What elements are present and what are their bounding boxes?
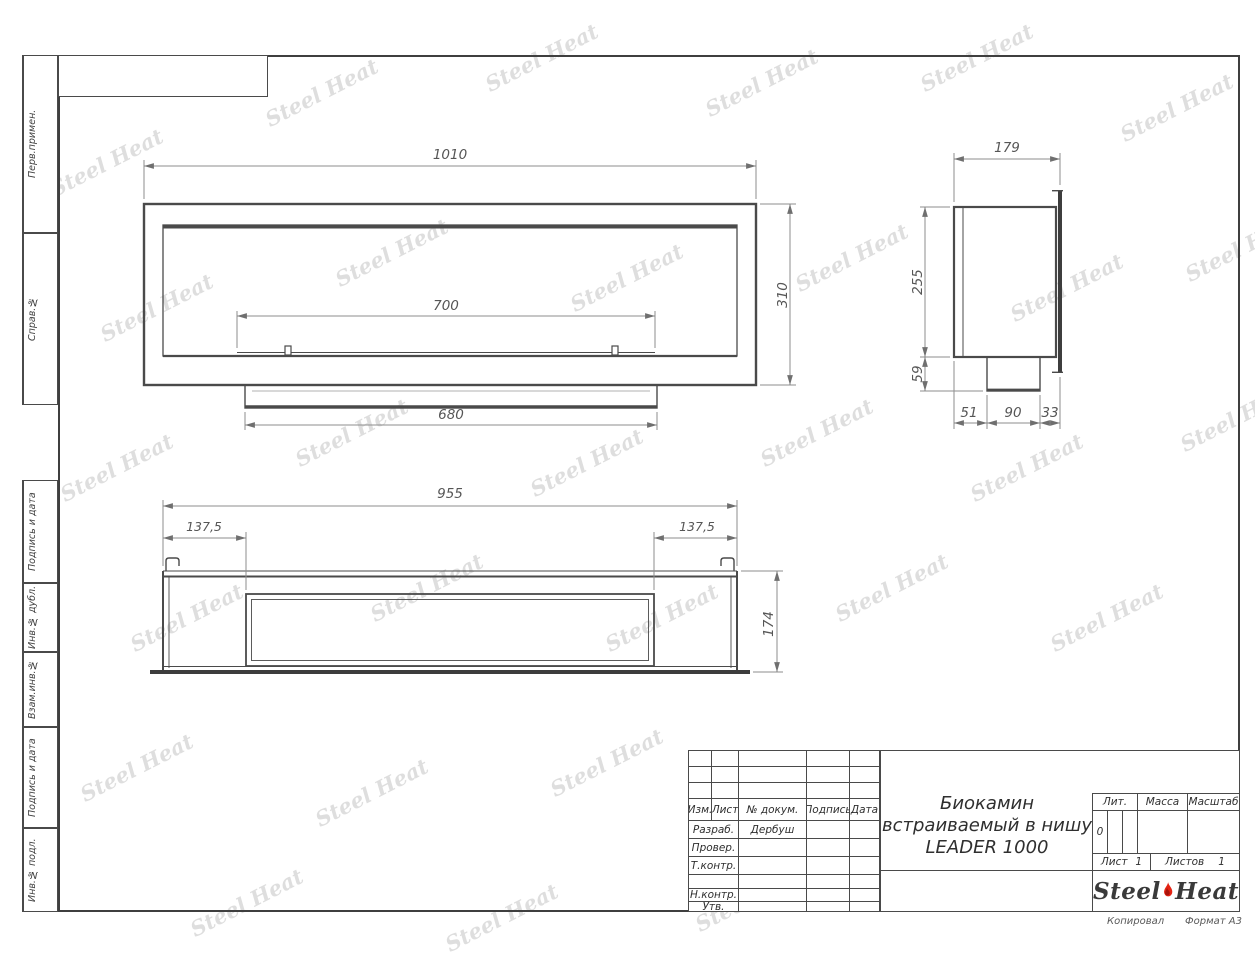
margin-blank xyxy=(41,234,57,404)
title-block-right-table: Лит. Масса Масштаб 0 Лист 1 Листов 1 Ste… xyxy=(1092,793,1239,911)
col-header-list: Лист xyxy=(712,799,739,821)
title-line-2: встраиваемый в нишу xyxy=(881,815,1093,837)
doc-cell xyxy=(739,875,807,889)
logo-heat-text: Heat xyxy=(1175,878,1239,905)
margin-blank xyxy=(41,653,57,726)
role-tkontr: Т.контр. xyxy=(689,857,739,875)
massa-header: Масса xyxy=(1138,794,1188,811)
col-header-izm: Изм. xyxy=(689,799,712,821)
developer-name: Дербуш xyxy=(739,821,807,839)
logo-steel-text: Steel xyxy=(1093,878,1161,905)
sheets-value: 1 xyxy=(1218,856,1225,868)
title-block-signature-table: Изм. Лист № докум. Подпись Дата Разраб. … xyxy=(688,750,880,912)
lit-header: Лит. xyxy=(1093,794,1138,811)
revision-cell xyxy=(712,767,739,783)
revision-cell xyxy=(739,783,807,799)
top-left-stamp-box xyxy=(58,55,268,97)
lit-cell-3 xyxy=(1123,811,1138,854)
document-title: Биокамин встраиваемый в нишу LEADER 1000 xyxy=(881,793,1093,859)
margin-label: Подпись и дата xyxy=(23,728,41,827)
role-razrab: Разраб. xyxy=(689,821,739,839)
massa-value-cell xyxy=(1138,811,1188,854)
margin-label: Перв.примен. xyxy=(23,56,41,232)
margin-cell-podpis-data-1: Подпись и дата xyxy=(22,480,58,583)
sign-cell xyxy=(807,902,850,911)
title-line-3: LEADER 1000 xyxy=(881,837,1093,859)
revision-cell xyxy=(739,751,807,767)
title-line-1: Биокамин xyxy=(881,793,1093,815)
doc-cell xyxy=(739,889,807,902)
masshtab-header: Масштаб xyxy=(1188,794,1239,811)
margin-cell-vzam-inv: Взам.инв.№ xyxy=(22,652,58,727)
sign-cell xyxy=(807,875,850,889)
margin-label: Взам.инв.№ xyxy=(23,653,41,726)
role-prover: Провер. xyxy=(689,839,739,857)
revision-cell xyxy=(807,751,850,767)
margin-blank xyxy=(41,728,57,827)
revision-cell xyxy=(689,783,712,799)
sheet-value: 1 xyxy=(1135,856,1142,868)
lit-value-cell: 0 xyxy=(1093,811,1108,854)
revision-cell xyxy=(850,783,879,799)
format-label: Формат А3 xyxy=(1185,916,1242,927)
margin-blank xyxy=(41,584,57,651)
margin-blank xyxy=(41,829,57,911)
revision-cell xyxy=(807,767,850,783)
margin-cell-inv-podl: Инв.№ подл. xyxy=(22,828,58,912)
lit-cell-2 xyxy=(1108,811,1123,854)
company-logo: Steel Heat xyxy=(1093,871,1239,911)
date-cell xyxy=(850,902,879,911)
sheet-cell: Лист 1 xyxy=(1093,854,1151,870)
revision-cell xyxy=(712,783,739,799)
revision-cell xyxy=(712,751,739,767)
copied-label: Копировал xyxy=(1107,916,1164,927)
drawing-sheet: Steel Heat Steel Heat Steel Heat Steel H… xyxy=(0,0,1255,970)
sign-cell xyxy=(807,889,850,902)
sheets-label: Листов xyxy=(1165,856,1204,868)
revision-cell xyxy=(689,767,712,783)
doc-cell xyxy=(739,902,807,911)
masshtab-value-cell xyxy=(1188,811,1239,854)
role-empty xyxy=(689,875,739,889)
sign-cell xyxy=(807,857,850,875)
sheet-label: Лист xyxy=(1101,856,1128,868)
col-header-data: Дата xyxy=(850,799,879,821)
margin-label: Подпись и дата xyxy=(23,481,41,582)
margin-label: Инв.№ подл. xyxy=(23,829,41,911)
margin-cell-inv-dubl: Инв.№ дубл. xyxy=(22,583,58,652)
date-cell xyxy=(850,857,879,875)
date-cell xyxy=(850,821,879,839)
doc-cell xyxy=(739,839,807,857)
margin-label: Инв.№ дубл. xyxy=(23,584,41,651)
margin-cell-podpis-data-2: Подпись и дата xyxy=(22,727,58,828)
title-divider xyxy=(881,870,1093,871)
sheet-row: Лист 1 Листов 1 xyxy=(1093,854,1239,871)
col-header-doc-no: № докум. xyxy=(739,799,807,821)
revision-cell xyxy=(807,783,850,799)
flame-icon xyxy=(1162,876,1174,904)
sign-cell xyxy=(807,821,850,839)
revision-cell xyxy=(850,751,879,767)
revision-cell xyxy=(689,751,712,767)
margin-blank xyxy=(41,56,57,232)
revision-cell xyxy=(850,767,879,783)
date-cell xyxy=(850,839,879,857)
date-cell xyxy=(850,875,879,889)
role-nkontr: Н.контр. xyxy=(689,889,739,902)
date-cell xyxy=(850,889,879,902)
margin-cell-perv-primen: Перв.примен. xyxy=(22,55,58,233)
sheets-cell: Листов 1 xyxy=(1151,854,1239,870)
margin-blank xyxy=(41,481,57,582)
sign-cell xyxy=(807,839,850,857)
title-block-main: Биокамин встраиваемый в нишу LEADER 1000… xyxy=(880,750,1240,912)
doc-cell xyxy=(739,857,807,875)
revision-cell xyxy=(739,767,807,783)
role-utv: Утв. xyxy=(689,902,739,911)
margin-label: Справ.№ xyxy=(23,234,41,404)
margin-cell-sprav-no: Справ.№ xyxy=(22,233,58,405)
col-header-podpis: Подпись xyxy=(807,799,850,821)
